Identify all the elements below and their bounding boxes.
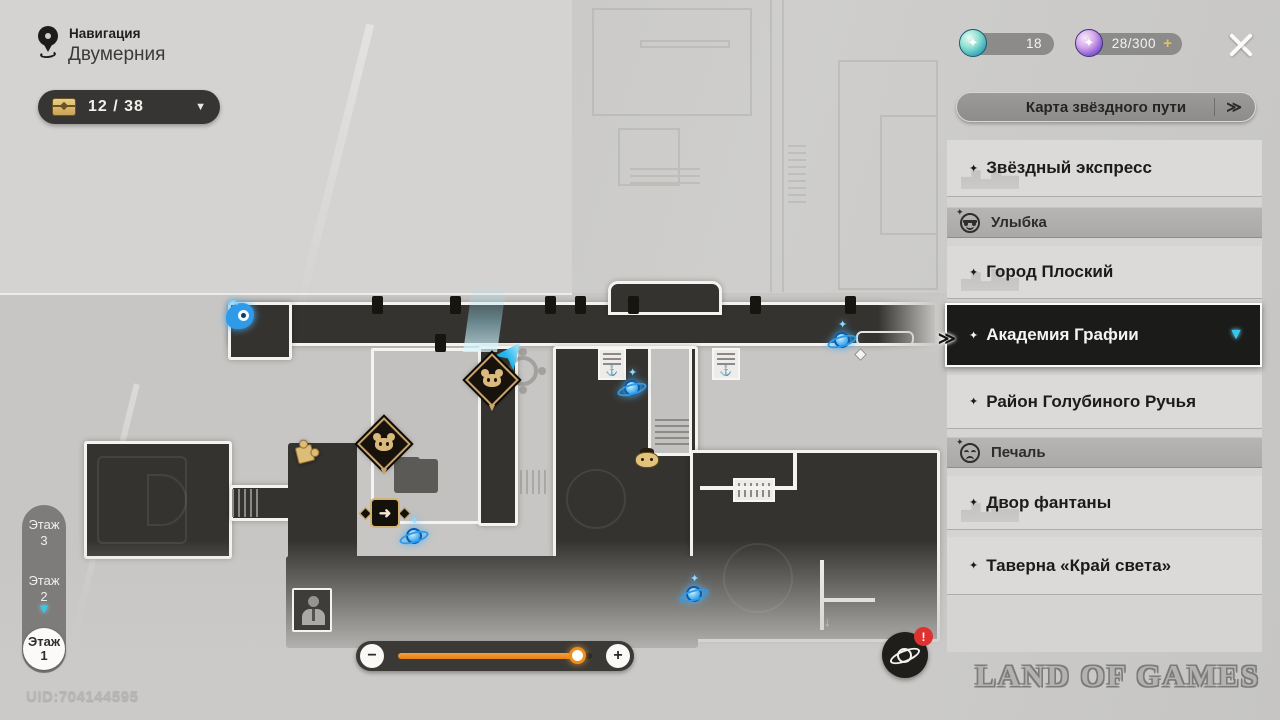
zoom-track[interactable] bbox=[398, 653, 592, 659]
map-door bbox=[575, 296, 586, 314]
map-corridor-light bbox=[648, 346, 692, 456]
floor-button-1-active[interactable]: Этаж1 bbox=[23, 628, 65, 670]
star-bullet-icon: ✦ bbox=[969, 559, 978, 572]
currency-pill-jade[interactable]: ✦ 18 bbox=[962, 33, 1054, 55]
origami-bird-marker[interactable] bbox=[226, 303, 254, 329]
ghost-floor-outlines bbox=[572, 0, 947, 295]
selected-pointer-icon: ≫ bbox=[938, 329, 956, 349]
map-wall bbox=[793, 452, 797, 490]
map-door bbox=[450, 296, 461, 314]
chest-counter-dropdown[interactable]: 12 / 38 ▼ bbox=[38, 90, 220, 124]
currency-value: 28/300 bbox=[1112, 36, 1156, 51]
sidebar-item-dove-creek[interactable]: ✦ Район Голубиного Ручья bbox=[947, 375, 1262, 429]
enemy-marker[interactable] bbox=[634, 448, 660, 470]
map-door bbox=[372, 296, 383, 314]
notification-badge: ! bbox=[914, 627, 933, 646]
chevron-down-icon: ▼ bbox=[195, 101, 206, 113]
location-pin-icon bbox=[36, 26, 62, 60]
space-anchor-marker[interactable]: ✦ bbox=[678, 576, 710, 612]
uid-label: UID:704144595 bbox=[26, 688, 138, 705]
map-wall bbox=[820, 598, 875, 602]
map-screen: ⚓ ⚓ ↓ ▼ ▼ bbox=[0, 0, 1280, 720]
smile-sunglasses-icon: ✦ bbox=[959, 212, 981, 234]
currency-pill-power[interactable]: ✦ 28/300 + bbox=[1078, 33, 1182, 55]
map-wall bbox=[700, 486, 795, 490]
space-anchor-marker[interactable]: ✦ bbox=[616, 370, 648, 406]
map-door bbox=[545, 296, 556, 314]
map-room bbox=[84, 441, 232, 559]
warp-trotter-marker[interactable]: ▼ bbox=[356, 416, 412, 476]
map-door bbox=[750, 296, 761, 314]
stairs-icon bbox=[232, 489, 260, 517]
stairs-icon: ⚓ bbox=[712, 348, 740, 380]
sidebar-item-grafia-academy[interactable]: ✦ Академия Графии ▼ bbox=[945, 303, 1262, 367]
stairs-icon bbox=[520, 470, 546, 494]
divider bbox=[1214, 98, 1215, 116]
nav-label: Навигация bbox=[69, 26, 140, 41]
star-bullet-icon: ✦ bbox=[969, 329, 978, 342]
map-room bbox=[690, 450, 940, 642]
zoom-in-button[interactable]: + bbox=[606, 644, 630, 668]
sad-face-icon: ✦ bbox=[959, 442, 981, 464]
chest-icon bbox=[52, 98, 76, 116]
map-room bbox=[608, 281, 722, 315]
warp-trotter-marker[interactable]: ▼ bbox=[464, 352, 520, 412]
power-currency-icon: ✦ bbox=[1075, 29, 1103, 57]
expand-arrow-icon[interactable]: ▼ bbox=[1228, 326, 1244, 344]
sidebar-item-fountain-court[interactable]: ✦ Двор фантаны bbox=[947, 476, 1262, 530]
map-room bbox=[286, 556, 698, 648]
npc-portrait-icon bbox=[292, 588, 332, 632]
floor-button-3[interactable]: Этаж3 bbox=[22, 517, 66, 548]
zoom-out-button[interactable]: − bbox=[360, 644, 384, 668]
space-anchor-marker[interactable]: ✦ bbox=[398, 518, 430, 554]
sidebar-item-worlds-end-tavern[interactable]: ✦ Таверна «Край света» bbox=[947, 537, 1262, 595]
chevron-right-icon: ≫ bbox=[1226, 98, 1242, 116]
stairs-icon bbox=[733, 478, 775, 502]
zoom-fill bbox=[398, 653, 578, 659]
currency-value: 18 bbox=[1026, 36, 1042, 51]
floor-button-2[interactable]: Этаж2 bbox=[22, 573, 66, 604]
map-door bbox=[845, 296, 856, 314]
floor-active-arrow-icon: ▼ bbox=[36, 601, 52, 616]
exit-down-arrow: ↓ bbox=[824, 614, 831, 629]
map-door bbox=[435, 334, 446, 352]
add-currency-button[interactable]: + bbox=[1163, 35, 1172, 52]
floor-selector: Этаж3 Этаж2 ▼ Этаж1 bbox=[22, 505, 66, 673]
sidebar-item-flat-city[interactable]: ✦ Город Плоский bbox=[947, 246, 1262, 299]
zoom-slider: − + bbox=[356, 641, 634, 671]
page-title: Двумерния bbox=[68, 44, 165, 66]
watermark: LAND OF GAMES bbox=[975, 658, 1260, 694]
map-door bbox=[628, 296, 639, 314]
star-rail-map-button[interactable]: Карта звёздного пути ≫ bbox=[956, 92, 1256, 122]
star-bullet-icon: ✦ bbox=[969, 395, 978, 408]
section-header-sadness: ✦ Печаль bbox=[947, 437, 1262, 468]
chest-count: 12 / 38 bbox=[88, 98, 144, 116]
section-header-smile: ✦ Улыбка bbox=[947, 207, 1262, 238]
map-button-label: Карта звёздного пути bbox=[1026, 99, 1186, 116]
close-button[interactable] bbox=[1224, 28, 1258, 62]
jade-currency-icon: ✦ bbox=[959, 29, 987, 57]
space-anchor-marker[interactable]: ✦ bbox=[826, 322, 858, 358]
zoom-knob[interactable] bbox=[569, 647, 586, 664]
sidebar-item-star-express[interactable]: ✦ Звёздный экспресс bbox=[947, 140, 1262, 197]
